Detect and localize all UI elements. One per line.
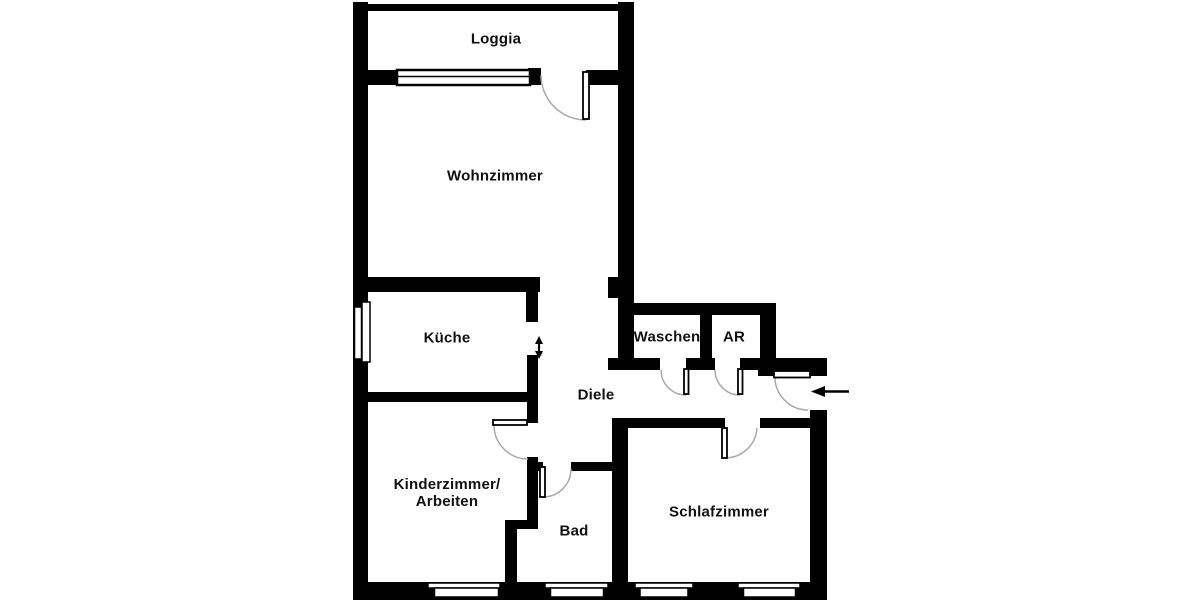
- bad-door-arc: [543, 469, 571, 497]
- balcony-door-arc: [541, 75, 586, 120]
- floor-plan: Loggia Wohnzimmer Küche Waschen AR Diele…: [0, 0, 1200, 600]
- wall-left-outer: [353, 2, 368, 600]
- wall-schlafzimmer-top-left: [612, 418, 725, 428]
- wall-waschen-ar-bottom-mid: [686, 358, 715, 370]
- wall-wohnzimmer-bottom: [368, 277, 540, 292]
- room-label-ar: AR: [723, 329, 745, 346]
- loggia-window: [397, 70, 530, 85]
- wall-waschen-ar-divider: [700, 315, 712, 358]
- wall-kueche-right-upper: [526, 292, 538, 322]
- wall-waschen-bottom-left: [608, 358, 660, 370]
- bad-door-leaf: [540, 467, 545, 497]
- kueche-window-inner: [362, 302, 370, 362]
- schlafzimmer-window-right: [744, 588, 796, 597]
- room-label-kinderzimmer-line1: Kinderzimmer/: [394, 476, 501, 493]
- entrance-arrow-icon: [811, 386, 849, 397]
- wall-kueche-bottom: [368, 392, 538, 402]
- room-label-waschen: Waschen: [634, 329, 701, 346]
- wall-loggia-top: [366, 4, 622, 11]
- room-label-kueche: Küche: [424, 330, 471, 347]
- door-leaves: [493, 72, 810, 497]
- room-label-schlafzimmer: Schlafzimmer: [669, 504, 769, 521]
- waschen-door-leaf: [684, 369, 689, 394]
- wall-waschen-ar-top: [618, 303, 776, 315]
- room-label-kinderzimmer-line2: Arbeiten: [416, 493, 478, 510]
- kinderzimmer-door-leaf: [493, 420, 527, 425]
- bad-window: [551, 588, 604, 597]
- room-label-diele: Diele: [578, 387, 615, 404]
- room-label-wohnzimmer: Wohnzimmer: [447, 168, 543, 185]
- entrance-door-leaf: [774, 371, 810, 378]
- wall-kinderzimmer-right: [527, 457, 538, 521]
- floor-plan-drawing: [0, 0, 1200, 600]
- room-label-bad: Bad: [560, 523, 589, 540]
- kueche-window-outer: [355, 307, 362, 359]
- waschen-door-arc: [661, 370, 686, 395]
- balcony-door-leaf: [583, 72, 589, 119]
- entrance-door-arc: [775, 377, 808, 410]
- kinderzimmer-door-arc: [494, 425, 528, 459]
- wall-bad-top: [571, 462, 615, 471]
- schlafzimmer-door-leaf: [722, 428, 727, 458]
- room-label-loggia: Loggia: [471, 31, 521, 48]
- door-arcs: [494, 75, 808, 497]
- wall-loggia-divider-right: [586, 70, 618, 85]
- wall-schlafzimmer-top-right: [760, 418, 811, 428]
- room-label-kinderzimmer: Kinderzimmer/ Arbeiten: [394, 476, 501, 510]
- wall-wohnzimmer-bottom-stub: [608, 277, 618, 298]
- wall-kueche-right-lower: [527, 355, 538, 423]
- ar-door-leaf: [738, 369, 743, 394]
- wall-right-outer-lower: [810, 410, 827, 600]
- wall-kinderzimmer-jog: [505, 520, 538, 529]
- wall-kinderzimmer-bad: [505, 529, 517, 583]
- kinderzimmer-window: [435, 588, 499, 597]
- ar-door-arc: [715, 370, 740, 395]
- wall-loggia-divider-left: [368, 70, 398, 85]
- schlafzimmer-door-arc: [725, 428, 757, 458]
- wall-bad-schlafzimmer: [612, 418, 628, 583]
- schlafzimmer-window-left: [640, 588, 688, 597]
